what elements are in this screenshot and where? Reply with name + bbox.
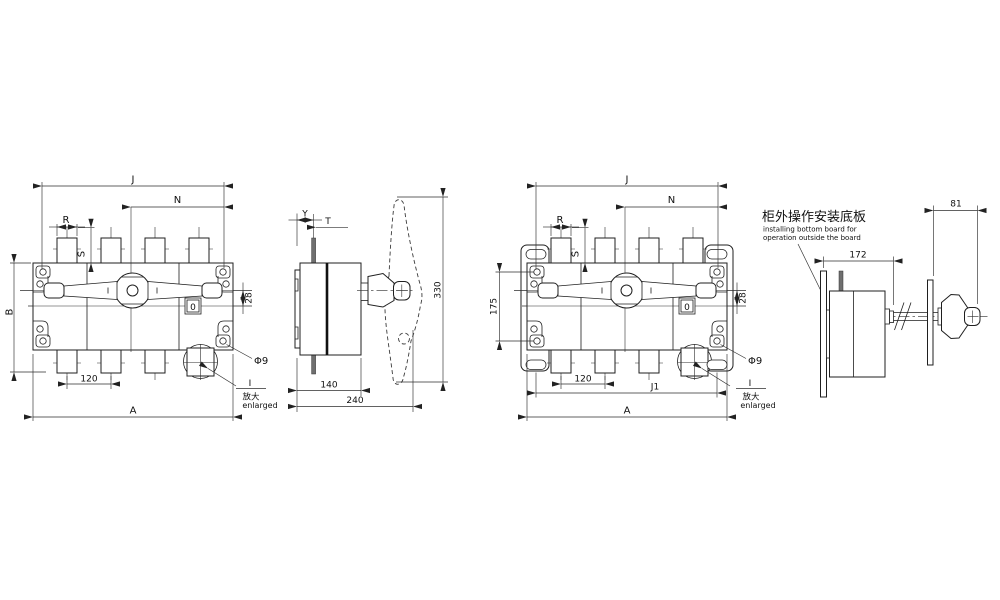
cabinet-panel: [928, 280, 934, 365]
note-chinese: 柜外操作安装底板: [762, 209, 866, 225]
dim-label-240: 240: [346, 396, 363, 406]
detail-label-en: enlarged: [740, 401, 775, 410]
detail-label-en: enlarged: [242, 401, 277, 410]
dim-label-n: N: [668, 195, 675, 206]
dim-label-28: 28: [245, 292, 255, 304]
extension-shaft: [885, 303, 928, 331]
detail-mark: I: [749, 379, 752, 389]
switch-body-side: [830, 271, 886, 377]
view-front-right: J N R S 175 J1 A 120 28 Φ9 0 I 放大 enlarg…: [490, 175, 776, 422]
indicator-zero: 0: [684, 303, 690, 313]
dim-label-81: 81: [950, 200, 961, 210]
dim-label-y: Y: [301, 210, 308, 220]
dim-label-j: J: [625, 175, 629, 186]
dim-label-120: 120: [574, 375, 591, 385]
note-leader-line: [798, 244, 821, 290]
handle-hub-side: [361, 274, 410, 308]
note-english-line1: installing bottom board for: [763, 226, 857, 234]
dim-label-hole-dia: Φ9: [748, 356, 762, 367]
dim-label-120: 120: [80, 375, 97, 385]
dim-label-28: 28: [739, 292, 749, 304]
flange-slot-bottom-right: [707, 360, 727, 370]
dim-label-t: T: [324, 217, 331, 227]
dim-label-330: 330: [434, 281, 444, 298]
external-handle: [933, 295, 980, 339]
bottom-board-plate: [821, 271, 830, 397]
dim-label-a: A: [624, 406, 631, 417]
note-english-line2: operation outside the board: [763, 234, 861, 242]
view-side-left: Y T 330 140 240: [289, 197, 449, 412]
dim-label-s: S: [571, 251, 582, 257]
dim-label-j1: J1: [650, 383, 659, 393]
dim-label-r: R: [557, 215, 564, 226]
dim-label-n: N: [174, 195, 181, 206]
dim-label-b: B: [5, 308, 16, 315]
view-side-right: 柜外操作安装底板 installing bottom board for ope…: [762, 200, 989, 398]
switch-disconnector-dimension-drawing: J N R S B A 120 28 Φ9 0 I 放大 enlarged: [0, 0, 1000, 600]
dim-label-r: R: [63, 215, 70, 226]
bottom-terminal-blade: [312, 355, 316, 374]
view-front-left: J N R S B A 120 28 Φ9 0 I 放大 enlarged: [5, 175, 278, 422]
dim-label-j: J: [131, 175, 135, 186]
dim-label-s: S: [77, 251, 88, 257]
detail-mark: I: [249, 379, 252, 389]
dim-label-175: 175: [490, 298, 500, 315]
indicator-zero: 0: [190, 303, 196, 313]
technical-drawing-page: J N R S B A 120 28 Φ9 0 I 放大 enlarged: [0, 0, 1000, 600]
dim-label-172: 172: [849, 251, 866, 261]
detail-callout-left: I 放大 enlarged: [236, 379, 278, 410]
dim-label-a: A: [130, 406, 137, 417]
side-body: [300, 263, 361, 355]
top-terminal-blade: [312, 238, 316, 263]
detail-callout-right: I 放大 enlarged: [736, 379, 776, 410]
dim-label-140: 140: [320, 381, 337, 391]
dim-label-hole-dia: Φ9: [254, 356, 268, 367]
